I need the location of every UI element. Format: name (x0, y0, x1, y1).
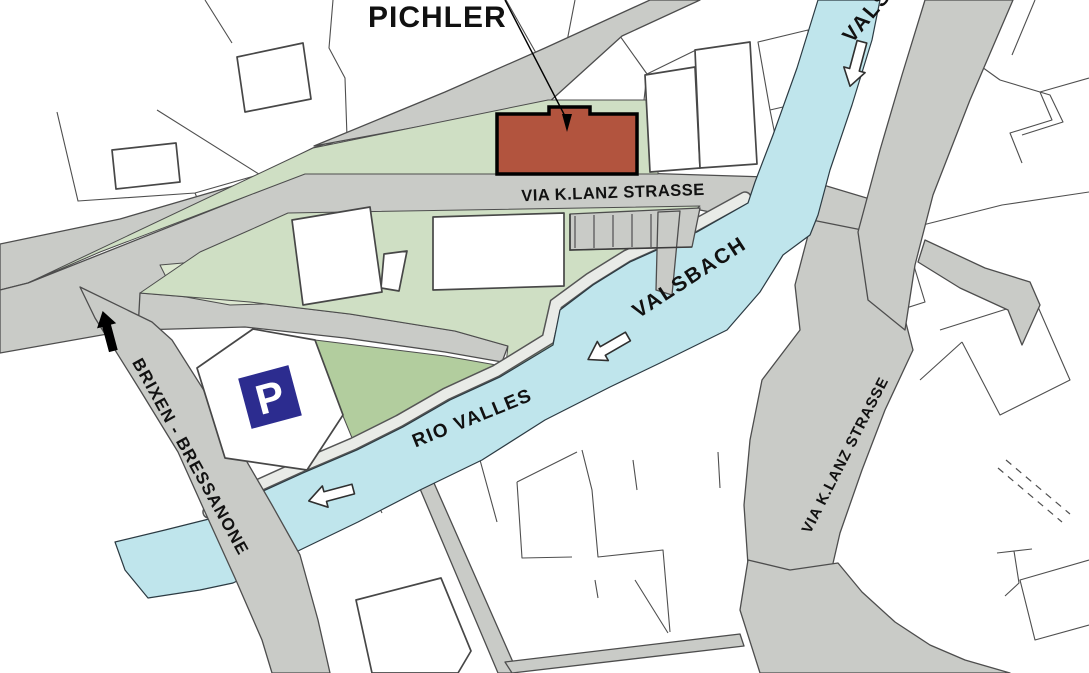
building-east-a (645, 67, 700, 172)
site-plan-canvas: P PICHLER VIA K.LANZ STRASSE VALSBACH VA… (0, 0, 1089, 673)
building-top-left-b (112, 143, 180, 189)
building-center-large (433, 213, 564, 290)
building-top-left-a (237, 43, 311, 112)
building-bottom-left (356, 578, 471, 673)
parcels-mid-right (920, 300, 1070, 415)
parcels-bottom-right (997, 549, 1089, 640)
path-bottom-horizontal (505, 634, 744, 673)
road-bottom-right-area (740, 560, 1010, 673)
parking-bay-area (570, 208, 700, 250)
building-center-west (292, 207, 382, 305)
dashed-boundary (998, 460, 1070, 522)
road-east-branch (918, 240, 1040, 345)
label-pichler: PICHLER (368, 1, 507, 34)
building-east-b (695, 42, 757, 168)
site-plan-map: P PICHLER VIA K.LANZ STRASSE VALSBACH VA… (0, 0, 1089, 673)
